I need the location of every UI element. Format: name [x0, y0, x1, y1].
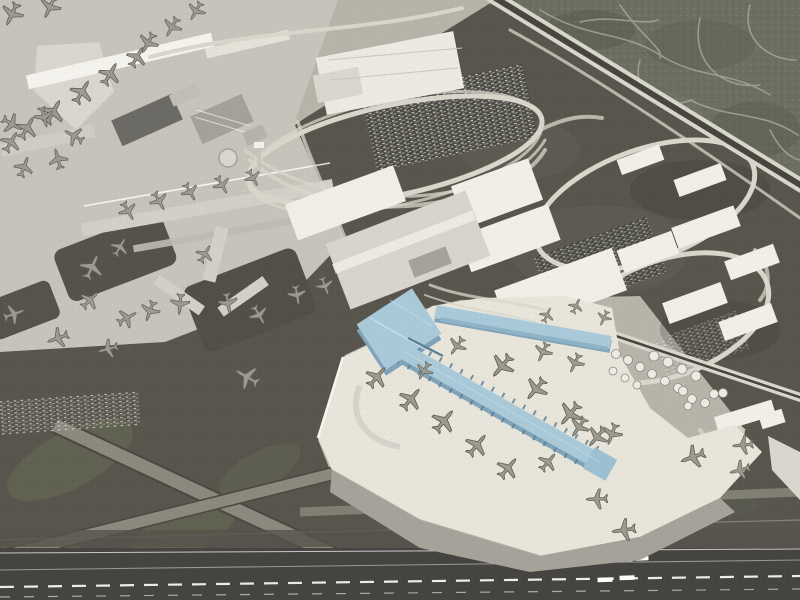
- photo-grain-overlay: [0, 0, 800, 600]
- airport-render-image: Airport expansion aerial rendering: [0, 0, 800, 600]
- airport-aerial-rendering: Airport expansion aerial rendering: [0, 0, 800, 600]
